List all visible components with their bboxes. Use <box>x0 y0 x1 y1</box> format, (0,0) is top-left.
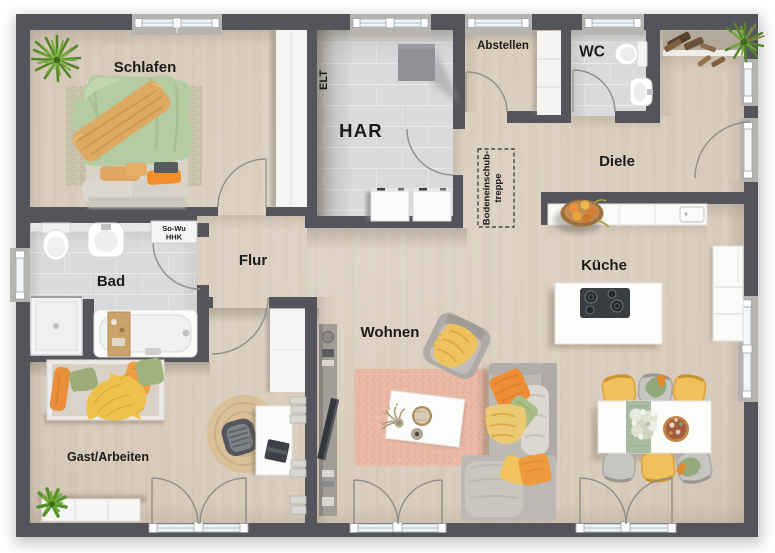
svg-text:treppe: treppe <box>493 173 504 202</box>
svg-text:Gast/Arbeiten: Gast/Arbeiten <box>67 450 149 464</box>
svg-text:Wohnen: Wohnen <box>361 324 420 341</box>
svg-text:Bad: Bad <box>97 273 125 290</box>
svg-text:WC: WC <box>579 44 605 61</box>
svg-text:Bodeneinschub-: Bodeneinschub- <box>482 151 493 225</box>
svg-text:Diele: Diele <box>599 153 635 170</box>
svg-text:Abstellen: Abstellen <box>477 40 529 52</box>
svg-text:Schlafen: Schlafen <box>114 59 177 76</box>
svg-text:HAR: HAR <box>339 120 383 141</box>
svg-text:HHK: HHK <box>166 233 183 242</box>
svg-text:Küche: Küche <box>581 257 627 274</box>
svg-text:ELT: ELT <box>318 70 330 90</box>
svg-text:Flur: Flur <box>239 252 267 269</box>
